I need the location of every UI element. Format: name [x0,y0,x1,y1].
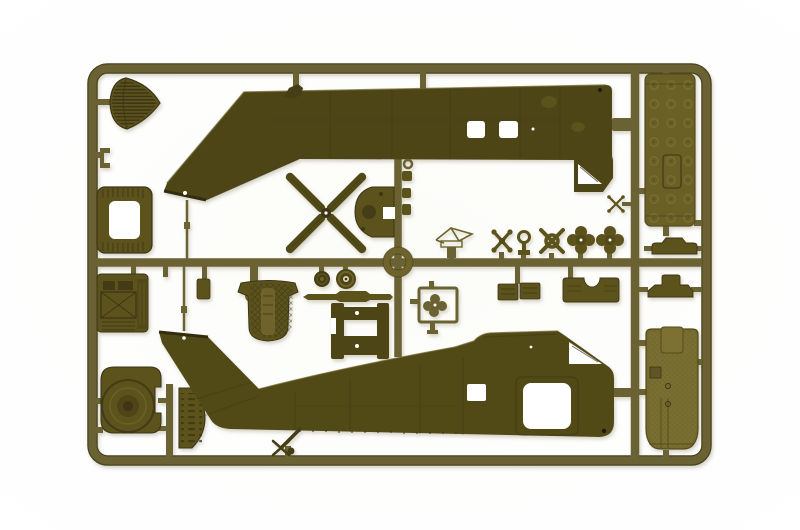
gearbox-housing [355,187,395,237]
wheel-main [336,269,356,289]
door-frame [97,187,152,253]
mirror-flag [197,279,210,299]
x-ring-hub [541,230,563,252]
rivet-panel [645,74,695,226]
instrument-console [97,274,148,332]
dome-panel [101,367,161,433]
sprue-photo: Photograph of an olive drab injection-mo… [0,0,800,530]
wheel-small [314,271,330,287]
sprue-photo-canvas: Photograph of an olive drab injection-mo… [0,0,800,530]
hatch-panel [646,327,698,449]
